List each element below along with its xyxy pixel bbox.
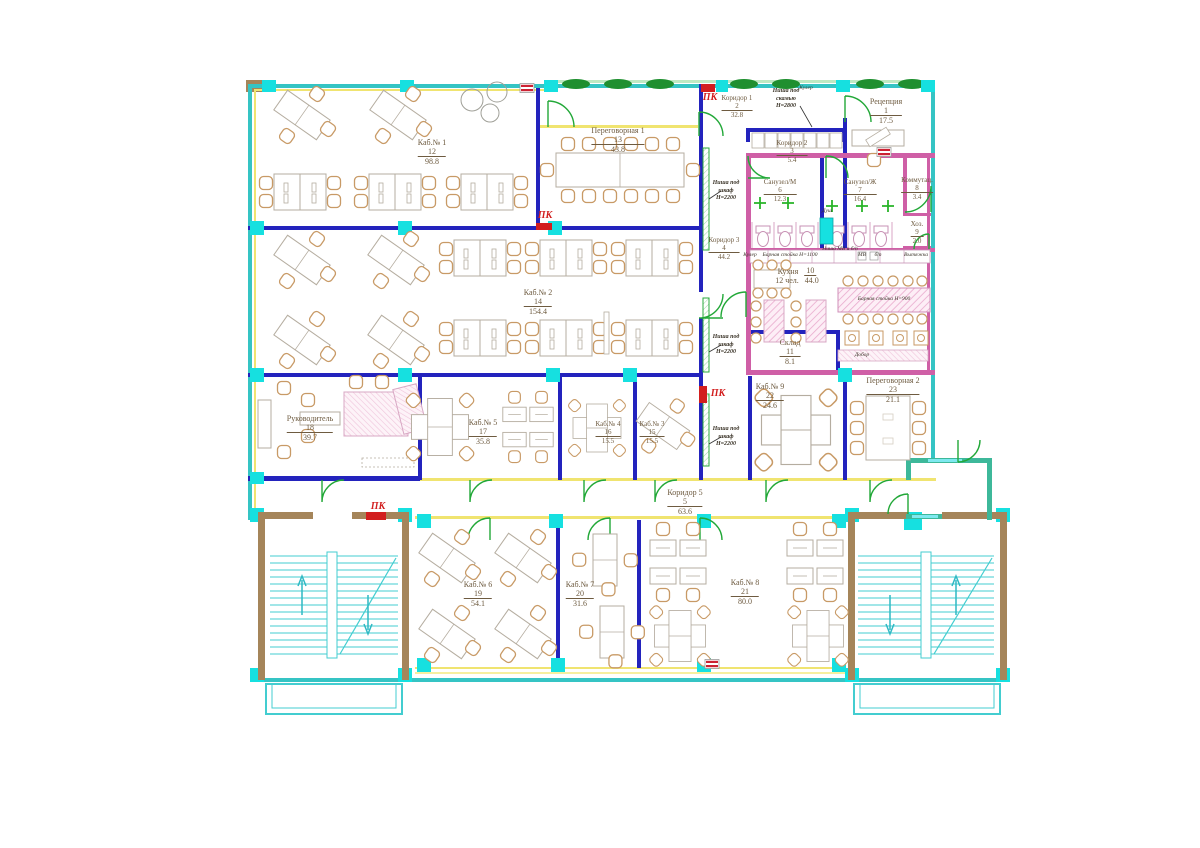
room-label-koridor3: Коридор 3 4 44.2 [709, 236, 740, 261]
shower-note: Душ [822, 208, 832, 215]
exhaust-note: Вытяжка [904, 252, 928, 259]
room-label-koridor2: Коридор 2 3 5.4 [777, 139, 808, 164]
fire-cabinet-label: ПК [711, 388, 726, 399]
room-label-meeting2: Переговорная 2 23 21.1 [866, 376, 919, 405]
room-label-kab3: Каб.№ 3 15 15.5 [640, 420, 665, 445]
labels-layer: Каб.№ 1 12 98.8 Переговорная 1 13 43.8 К… [0, 0, 1200, 848]
floor-plan-canvas: Каб.№ 1 12 98.8 Переговорная 1 13 43.8 К… [0, 0, 1200, 848]
bench-niche-note: Ниша под скамью Н=2800 [773, 88, 800, 111]
mw-note: МВ [858, 252, 866, 259]
room-label-kab5: Каб.№ 5 17 35.8 [469, 418, 497, 447]
bar-counter-1100-note: Барная стойка Н=1100 [763, 252, 818, 259]
fire-cabinet-label: ПК [371, 501, 386, 512]
cooler-note: Кулер [743, 252, 756, 259]
wardrobe-niche-note: Ниша под шкаф Н=2200 [713, 426, 740, 449]
room-label-reception: Рецепция 1 17.5 [870, 97, 902, 126]
room-label-koridor5: Коридор 5 5 63.6 [667, 488, 702, 517]
room-label-kab1: Каб.№ 1 12 98.8 [418, 138, 446, 167]
room-label-meeting1: Переговорная 1 13 43.8 [591, 126, 644, 155]
room-label-wc-m: Санузел/М 6 12.3 [764, 178, 797, 203]
room-label-koridor1: Коридор 1 2 32.8 [722, 94, 753, 119]
wardrobe-niche-note: Ниша под шкаф Н=2200 [713, 180, 740, 203]
room-label-kab2: Каб.№ 2 14 154.4 [524, 288, 552, 317]
room-label-kab8: Каб.№ 8 21 80.0 [731, 578, 759, 607]
room-label-hoz: Хоз. 9 2.0 [911, 220, 924, 245]
room-label-server: Коммутац. 8 3.4 [901, 176, 933, 201]
room-label-sklad: Склад 11 8.1 [780, 338, 801, 367]
mw-niche-note: Ниша МВ и б/п [822, 246, 857, 253]
bar-counter-900-note: Барная стойка Н=900 [858, 296, 911, 303]
fire-cabinet-label: ПК [703, 92, 718, 103]
room-label-kab9: Каб.№ 9 22 24.6 [756, 382, 784, 411]
room-label-kab7: Каб.№ 7 20 31.6 [566, 580, 594, 609]
room-label-director: Руководитель 18 39.7 [287, 414, 333, 443]
room-label-kab6: Каб.№ 6 19 54.1 [464, 580, 492, 609]
cooler-note: Кулер [799, 85, 812, 92]
fire-cabinet-label: ПК [538, 210, 553, 221]
bp-note: б/п [874, 252, 881, 259]
room-label-kitchen: Кухня 10 12 чел. 44.0 [775, 266, 819, 285]
dobor-note: Добор [855, 352, 869, 359]
room-label-wc-f: Санузел/Ж 7 16.4 [844, 178, 877, 203]
wardrob-niche-note: Ниша под шкаф Н=2200 [713, 334, 740, 357]
room-label-kab4: Каб.№ 4 16 15.5 [596, 420, 621, 445]
